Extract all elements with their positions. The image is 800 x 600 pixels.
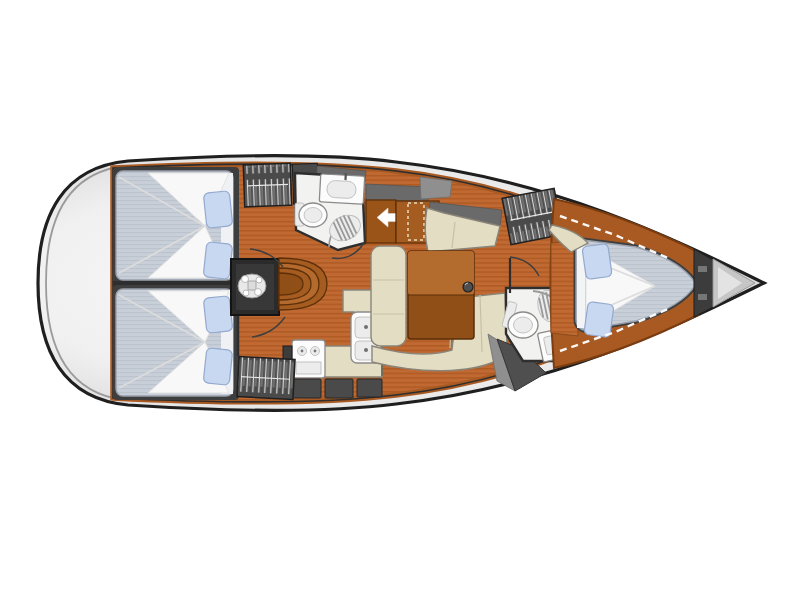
pillow [203, 191, 233, 229]
galley-locker [357, 379, 382, 397]
hanging-locker-aft-starboard [237, 357, 295, 400]
pillow [582, 243, 612, 279]
bulkhead-vent [698, 294, 707, 300]
burner-center [301, 350, 304, 353]
settee-left-bench [371, 246, 406, 346]
bulkhead-vent [698, 266, 707, 272]
engine-compartment [231, 259, 279, 315]
sailboat-floor-plan [0, 0, 800, 600]
burner-center [314, 350, 317, 353]
engine-detail [256, 277, 262, 283]
companionway-hatch [366, 184, 428, 201]
galley-locker [292, 379, 321, 398]
toilet-seat [514, 317, 533, 333]
sliding-hatch [420, 177, 452, 199]
pillow [584, 301, 614, 337]
pillow [203, 296, 233, 334]
aft-cabin-port [113, 167, 239, 283]
drain [364, 348, 368, 352]
forward-cabin [549, 199, 698, 368]
pillow [203, 242, 233, 280]
washbasin [319, 172, 365, 204]
boat-floor-plan-page [0, 0, 800, 600]
aft-cabin-starboard [113, 285, 239, 400]
engine-detail [243, 290, 249, 296]
bow-bulkhead [694, 249, 713, 317]
oven-door [296, 362, 321, 374]
engine-detail [255, 289, 262, 296]
pillow [203, 348, 233, 386]
engine-detail [248, 281, 256, 290]
galley-locker [325, 379, 353, 398]
drain [364, 325, 368, 329]
engine-detail [242, 276, 249, 283]
toilet-seat [304, 208, 322, 223]
